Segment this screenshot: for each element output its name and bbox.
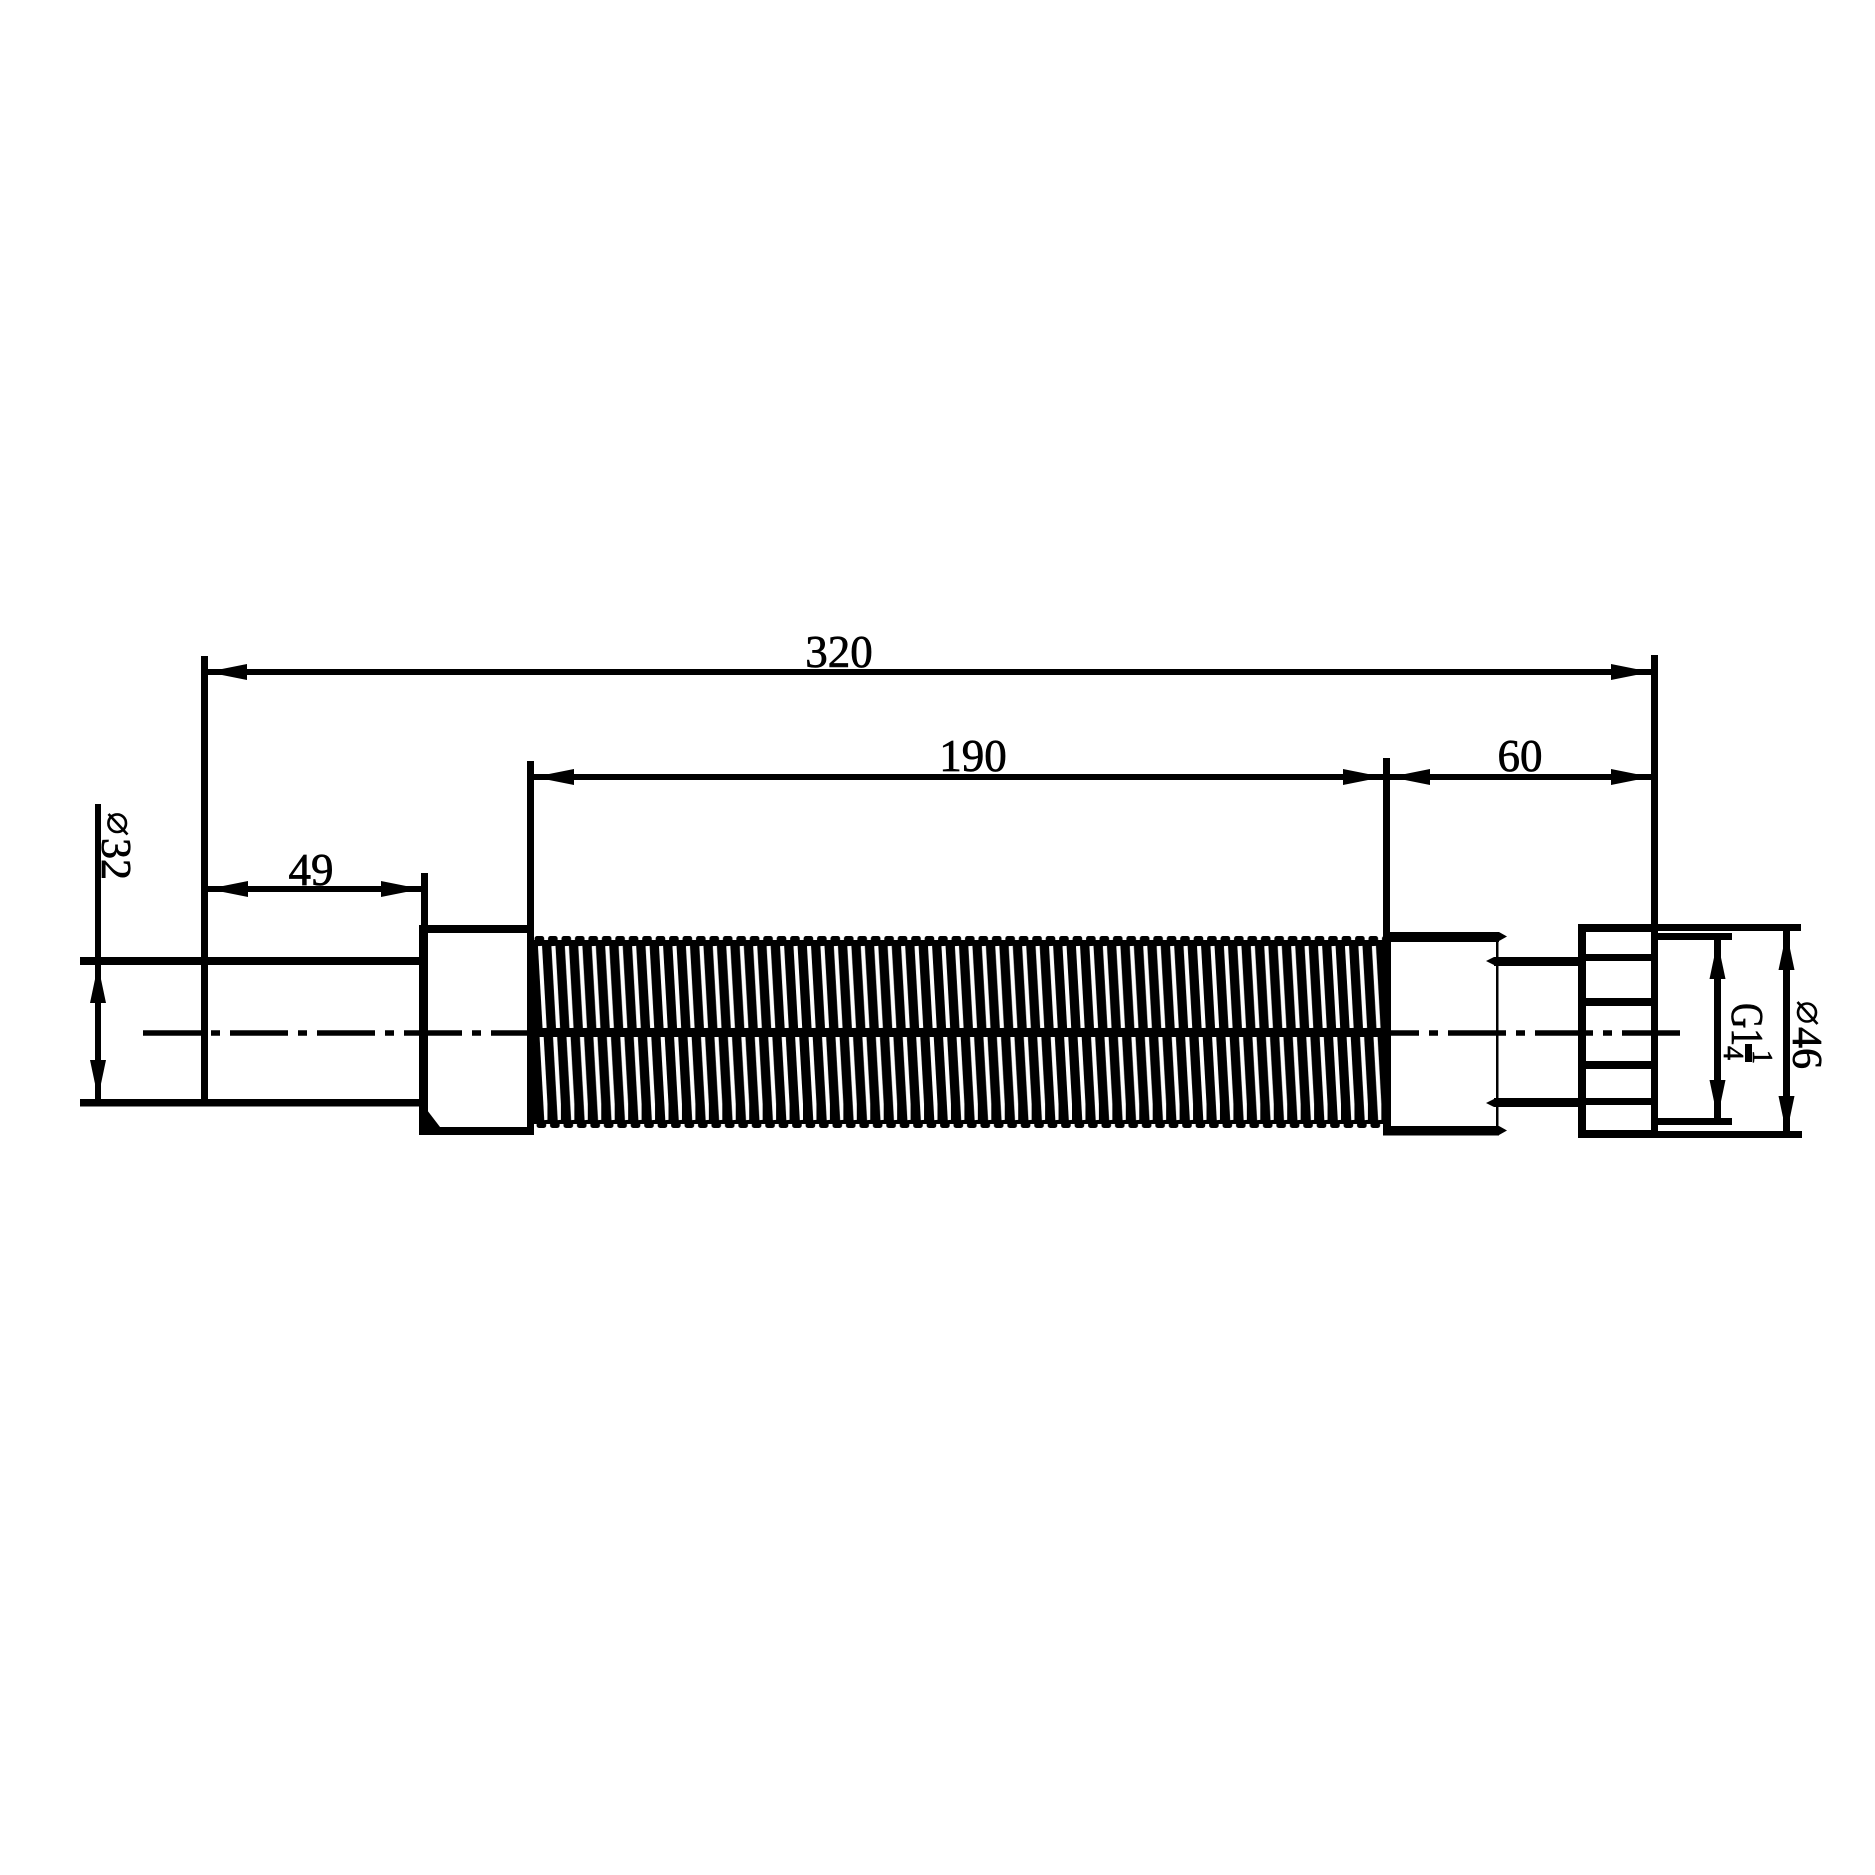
svg-text:320: 320 bbox=[805, 627, 873, 677]
svg-text:49: 49 bbox=[289, 845, 334, 895]
svg-text:G1: G1 bbox=[1722, 1003, 1772, 1046]
svg-text:1: 1 bbox=[1746, 1050, 1777, 1064]
svg-text:60: 60 bbox=[1498, 731, 1543, 781]
svg-text:46: 46 bbox=[1783, 1027, 1829, 1069]
svg-text:32: 32 bbox=[92, 838, 138, 880]
svg-text:4: 4 bbox=[1717, 1046, 1748, 1060]
svg-text:190: 190 bbox=[939, 731, 1007, 781]
